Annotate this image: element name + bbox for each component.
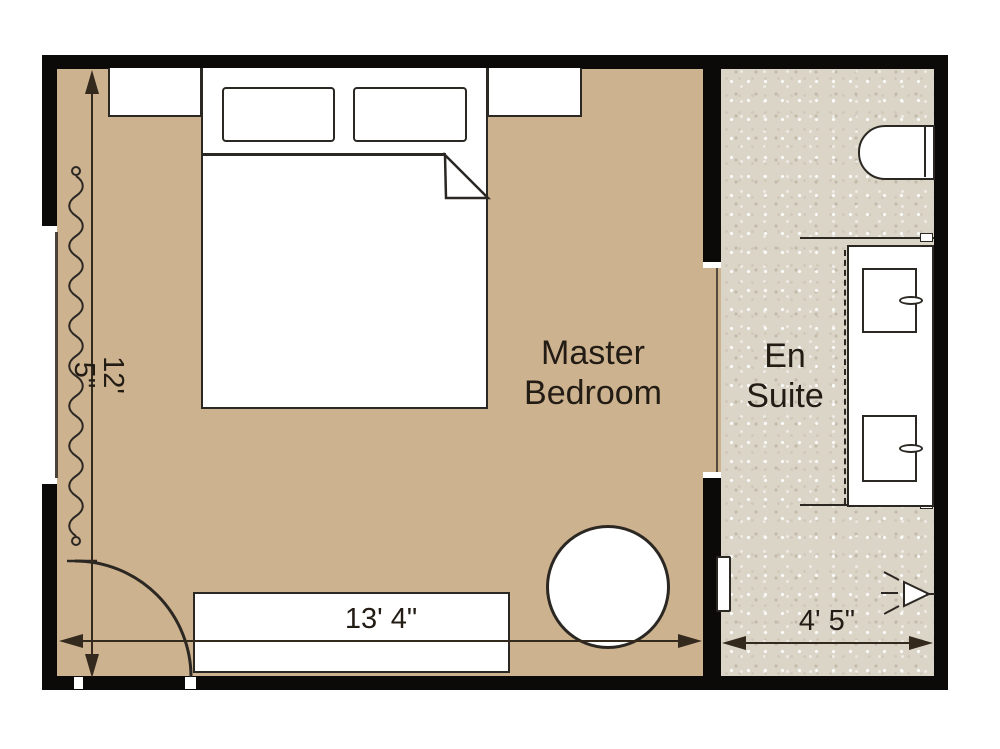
toilet-tank-line <box>924 127 926 177</box>
ensuite-door-jamb-bottom <box>703 472 721 478</box>
pipe-box-top <box>920 233 933 242</box>
nightstand-left-icon <box>108 68 202 117</box>
window-icon <box>55 232 58 478</box>
master-bedroom-label: Master Bedroom <box>513 333 673 413</box>
wall-right <box>934 55 948 690</box>
en-suite-doorway-floor <box>703 268 721 472</box>
floor-plan: Master Bedroom En Suite 12' 5" 13' 4" 4'… <box>0 0 1000 749</box>
blanket-edge-line <box>202 153 446 156</box>
wall-top <box>42 55 948 69</box>
en-suite-label: En Suite <box>730 336 840 416</box>
wall-left-upper <box>42 55 57 232</box>
toilet-icon <box>858 125 935 180</box>
ensuite-width-dimension-label: 4' 5" <box>782 607 872 636</box>
pillow-right-icon <box>353 87 467 142</box>
wall-left-lower <box>42 484 57 690</box>
pillow-left-icon <box>222 87 335 142</box>
door-handle-icon <box>716 556 731 612</box>
wall-divider-upper <box>703 69 721 262</box>
bedroom-door-jamb-right <box>185 677 196 689</box>
bedroom-height-dimension-label: 12' 5" <box>99 340 127 410</box>
round-table-icon <box>546 525 670 649</box>
vanity-dashed-edge <box>844 250 846 504</box>
counter-edge-top <box>800 237 934 239</box>
faucet-bottom-icon <box>899 444 923 453</box>
bedroom-door-jamb-left <box>74 677 83 689</box>
nightstand-right-icon <box>487 68 582 117</box>
bedroom-width-dimension-label: 13' 4" <box>331 605 431 634</box>
faucet-top-icon <box>899 296 923 305</box>
wall-bottom <box>42 676 948 690</box>
window-jamb-bottom <box>42 478 57 484</box>
ensuite-door-jamb-top <box>703 262 721 268</box>
